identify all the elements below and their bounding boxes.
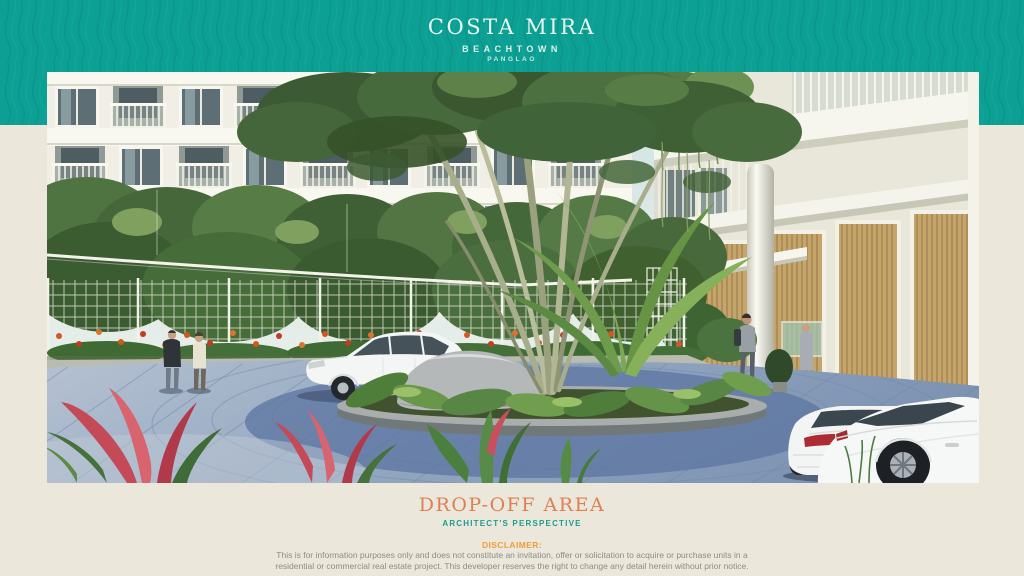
drop-off-rendering — [47, 72, 979, 483]
page: COSTA MIRA BEACHTOWN PANGLAO — [0, 0, 1024, 576]
hero-rendering — [47, 72, 979, 483]
logo-subtitle: BEACHTOWN — [0, 44, 1024, 54]
page-subtitle: ARCHITECT'S PERSPECTIVE — [0, 519, 1024, 528]
disclaimer-line-2: residential or commercial real estate pr… — [0, 561, 1024, 572]
disclaimer-label: DISCLAIMER: — [0, 540, 1024, 550]
logo-title: COSTA MIRA — [0, 15, 1024, 39]
logo-location: PANGLAO — [0, 56, 1024, 63]
costa-mira-logo: COSTA MIRA BEACHTOWN PANGLAO — [0, 15, 1024, 63]
caption-block: DROP-OFF AREA ARCHITECT'S PERSPECTIVE — [0, 494, 1024, 528]
page-title: DROP-OFF AREA — [0, 494, 1024, 516]
disclaimer: DISCLAIMER: This is for information purp… — [0, 540, 1024, 571]
disclaimer-line-1: This is for information purposes only an… — [0, 550, 1024, 561]
